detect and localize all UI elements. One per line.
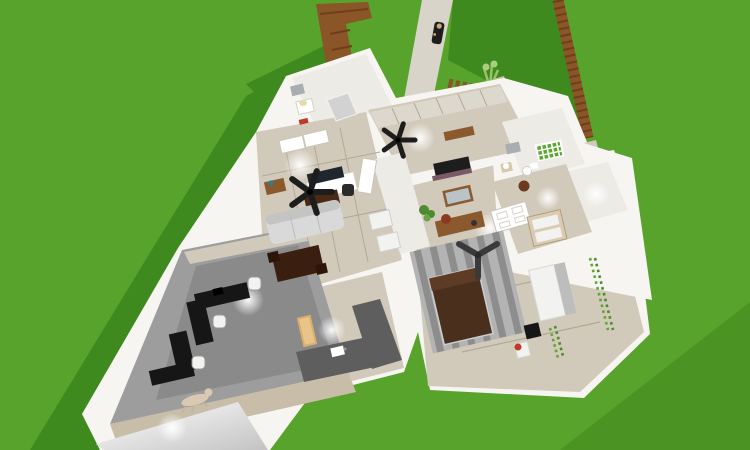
lamp[interactable] [471, 220, 477, 226]
bowl[interactable] [441, 214, 451, 224]
light-glow [583, 181, 609, 207]
fan-hub [307, 189, 313, 195]
faucet [344, 348, 347, 351]
sink-bowl [299, 100, 307, 106]
plant-leaves [491, 61, 498, 68]
toilet[interactable] [523, 167, 532, 176]
teal-vase [268, 180, 273, 185]
light-glow [536, 186, 560, 210]
floorplan-scene[interactable] [0, 0, 750, 450]
office-chair-3[interactable] [192, 356, 205, 369]
desk-chair[interactable] [342, 184, 354, 196]
office-chair-2[interactable] [213, 315, 226, 328]
floorplan-3d-viewport[interactable] [0, 0, 750, 450]
plant-foliage [424, 215, 431, 222]
round-stool[interactable] [519, 181, 530, 192]
light-glow [157, 413, 187, 443]
fan-hub [475, 252, 481, 258]
sink-bowl [503, 163, 509, 169]
red-cup[interactable] [515, 344, 522, 351]
office-chair-1[interactable] [248, 277, 261, 290]
plant-leaves [483, 64, 490, 71]
fan-hub [396, 138, 401, 143]
light-glow [318, 316, 346, 344]
